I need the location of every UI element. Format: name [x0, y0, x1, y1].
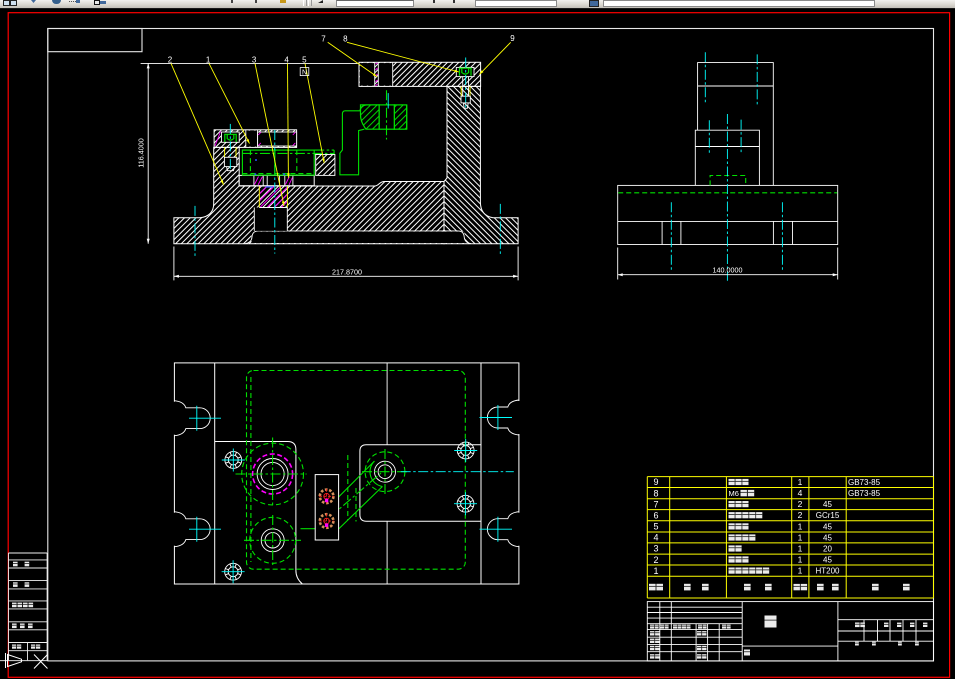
svg-text:1: 1 — [798, 533, 803, 543]
svg-text:8: 8 — [343, 35, 348, 44]
svg-text:2: 2 — [653, 555, 658, 565]
svg-text:M6: M6 — [729, 489, 739, 498]
svg-text:3: 3 — [252, 56, 257, 65]
svg-text:1: 1 — [206, 56, 211, 65]
svg-text:1: 1 — [798, 521, 803, 531]
svg-text:2: 2 — [798, 510, 803, 520]
svg-text:1: 1 — [798, 477, 803, 487]
svg-text:9: 9 — [653, 477, 658, 487]
svg-text:217.8700: 217.8700 — [332, 267, 362, 276]
svg-text:20: 20 — [823, 545, 832, 554]
svg-text:1: 1 — [798, 555, 803, 565]
svg-text:N: N — [302, 70, 307, 77]
svg-text:9: 9 — [510, 34, 515, 43]
svg-text:7: 7 — [653, 499, 658, 509]
svg-text:7: 7 — [321, 35, 326, 44]
svg-text:HT200: HT200 — [815, 567, 840, 576]
svg-text:4: 4 — [284, 56, 289, 65]
svg-text:GCr15: GCr15 — [816, 511, 840, 520]
svg-text:3: 3 — [653, 544, 658, 554]
svg-text:45: 45 — [823, 522, 832, 531]
svg-text:4: 4 — [798, 488, 803, 498]
svg-text:2: 2 — [168, 56, 173, 65]
svg-text:5: 5 — [302, 56, 307, 65]
svg-text:5: 5 — [653, 522, 658, 532]
svg-text:4: 4 — [653, 533, 658, 543]
svg-text:116.4000: 116.4000 — [137, 138, 146, 167]
svg-text:45: 45 — [823, 534, 832, 543]
svg-text:1: 1 — [798, 566, 803, 576]
svg-text:GB73-85: GB73-85 — [848, 478, 881, 487]
svg-text:140.0000: 140.0000 — [713, 266, 743, 275]
svg-text:45: 45 — [823, 500, 832, 509]
svg-text:2: 2 — [798, 499, 803, 509]
svg-text:1: 1 — [798, 544, 803, 554]
svg-text:45: 45 — [823, 556, 832, 565]
svg-text:1: 1 — [653, 566, 658, 576]
svg-text:GB73-85: GB73-85 — [848, 489, 881, 498]
svg-text:6: 6 — [653, 510, 658, 520]
svg-text:8: 8 — [653, 488, 658, 498]
